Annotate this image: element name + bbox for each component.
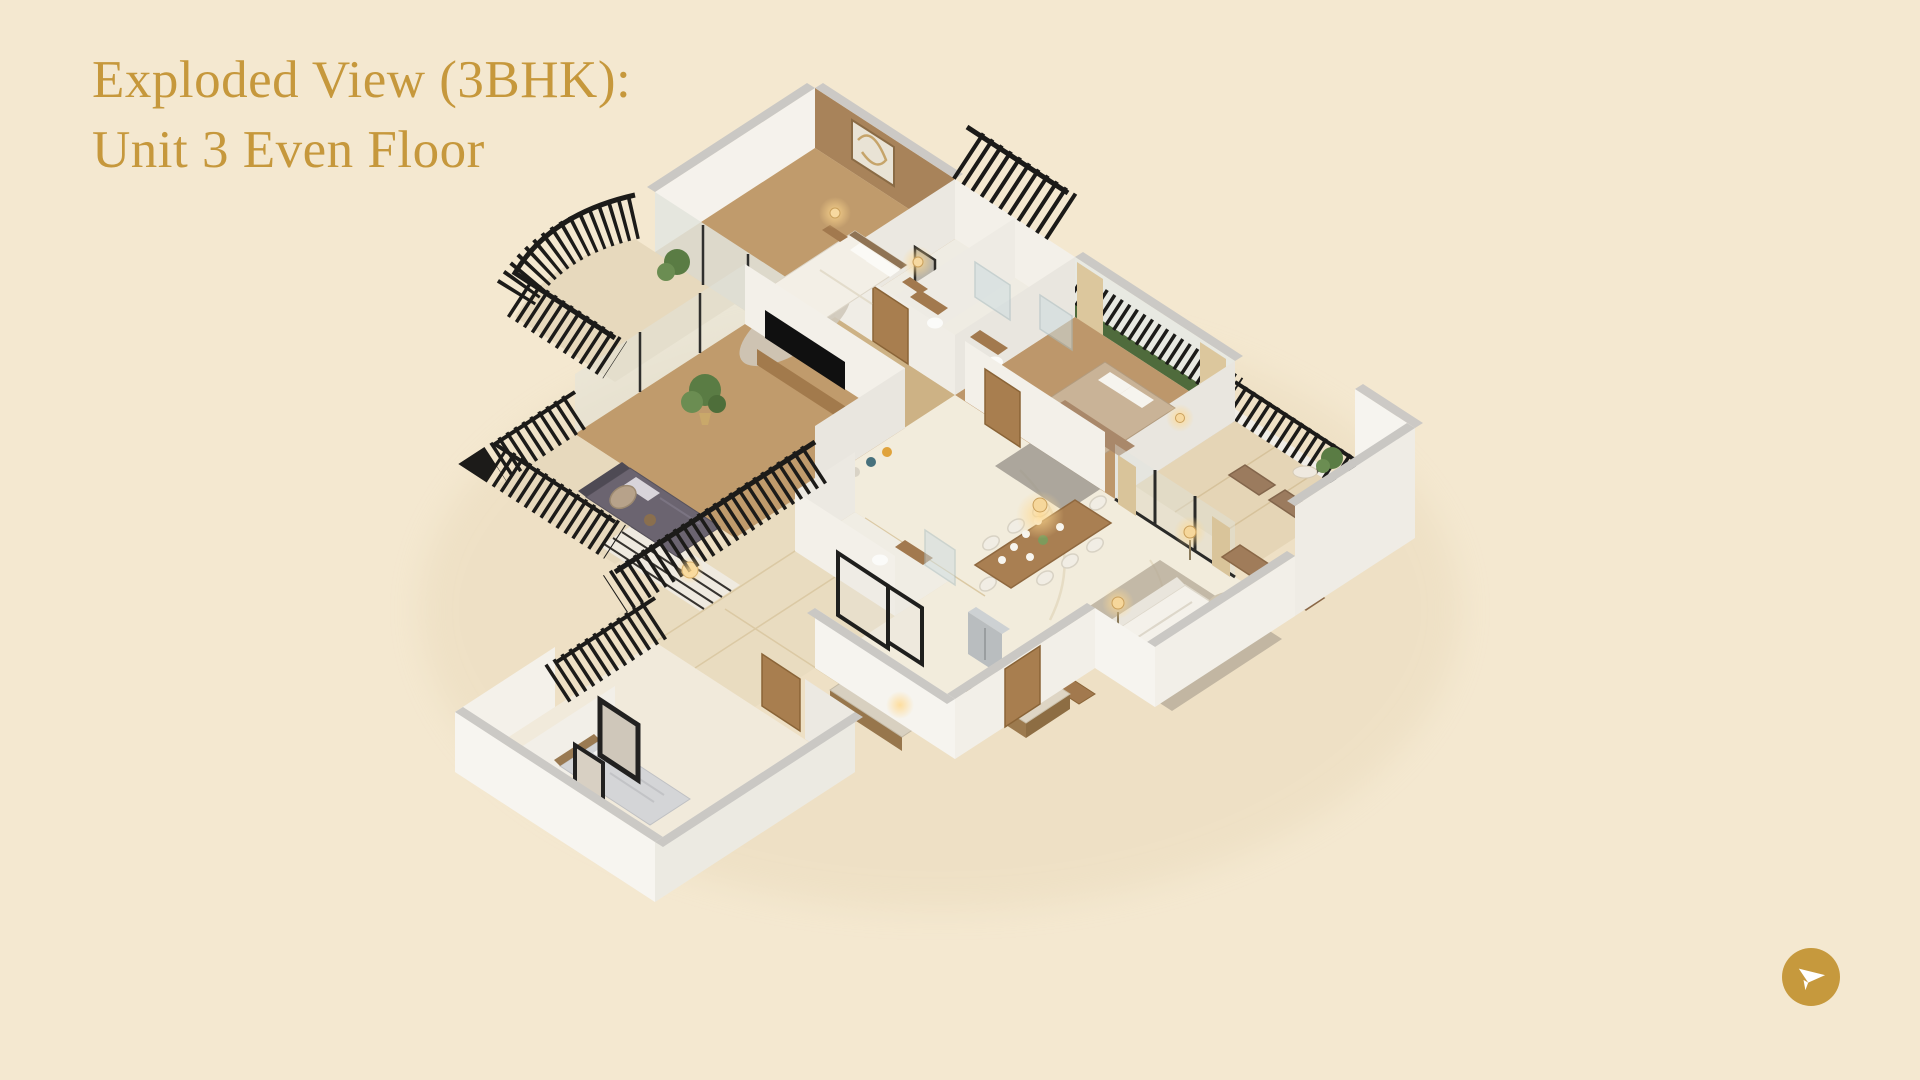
side-table <box>644 514 656 526</box>
floor-plan-svg <box>0 0 1920 1080</box>
paper-plane-icon <box>1796 962 1826 992</box>
send-button[interactable] <box>1782 948 1840 1006</box>
round-table <box>1293 466 1317 478</box>
toilet <box>927 318 943 329</box>
floor-plan-render <box>0 0 1920 1080</box>
toilet <box>872 555 888 566</box>
